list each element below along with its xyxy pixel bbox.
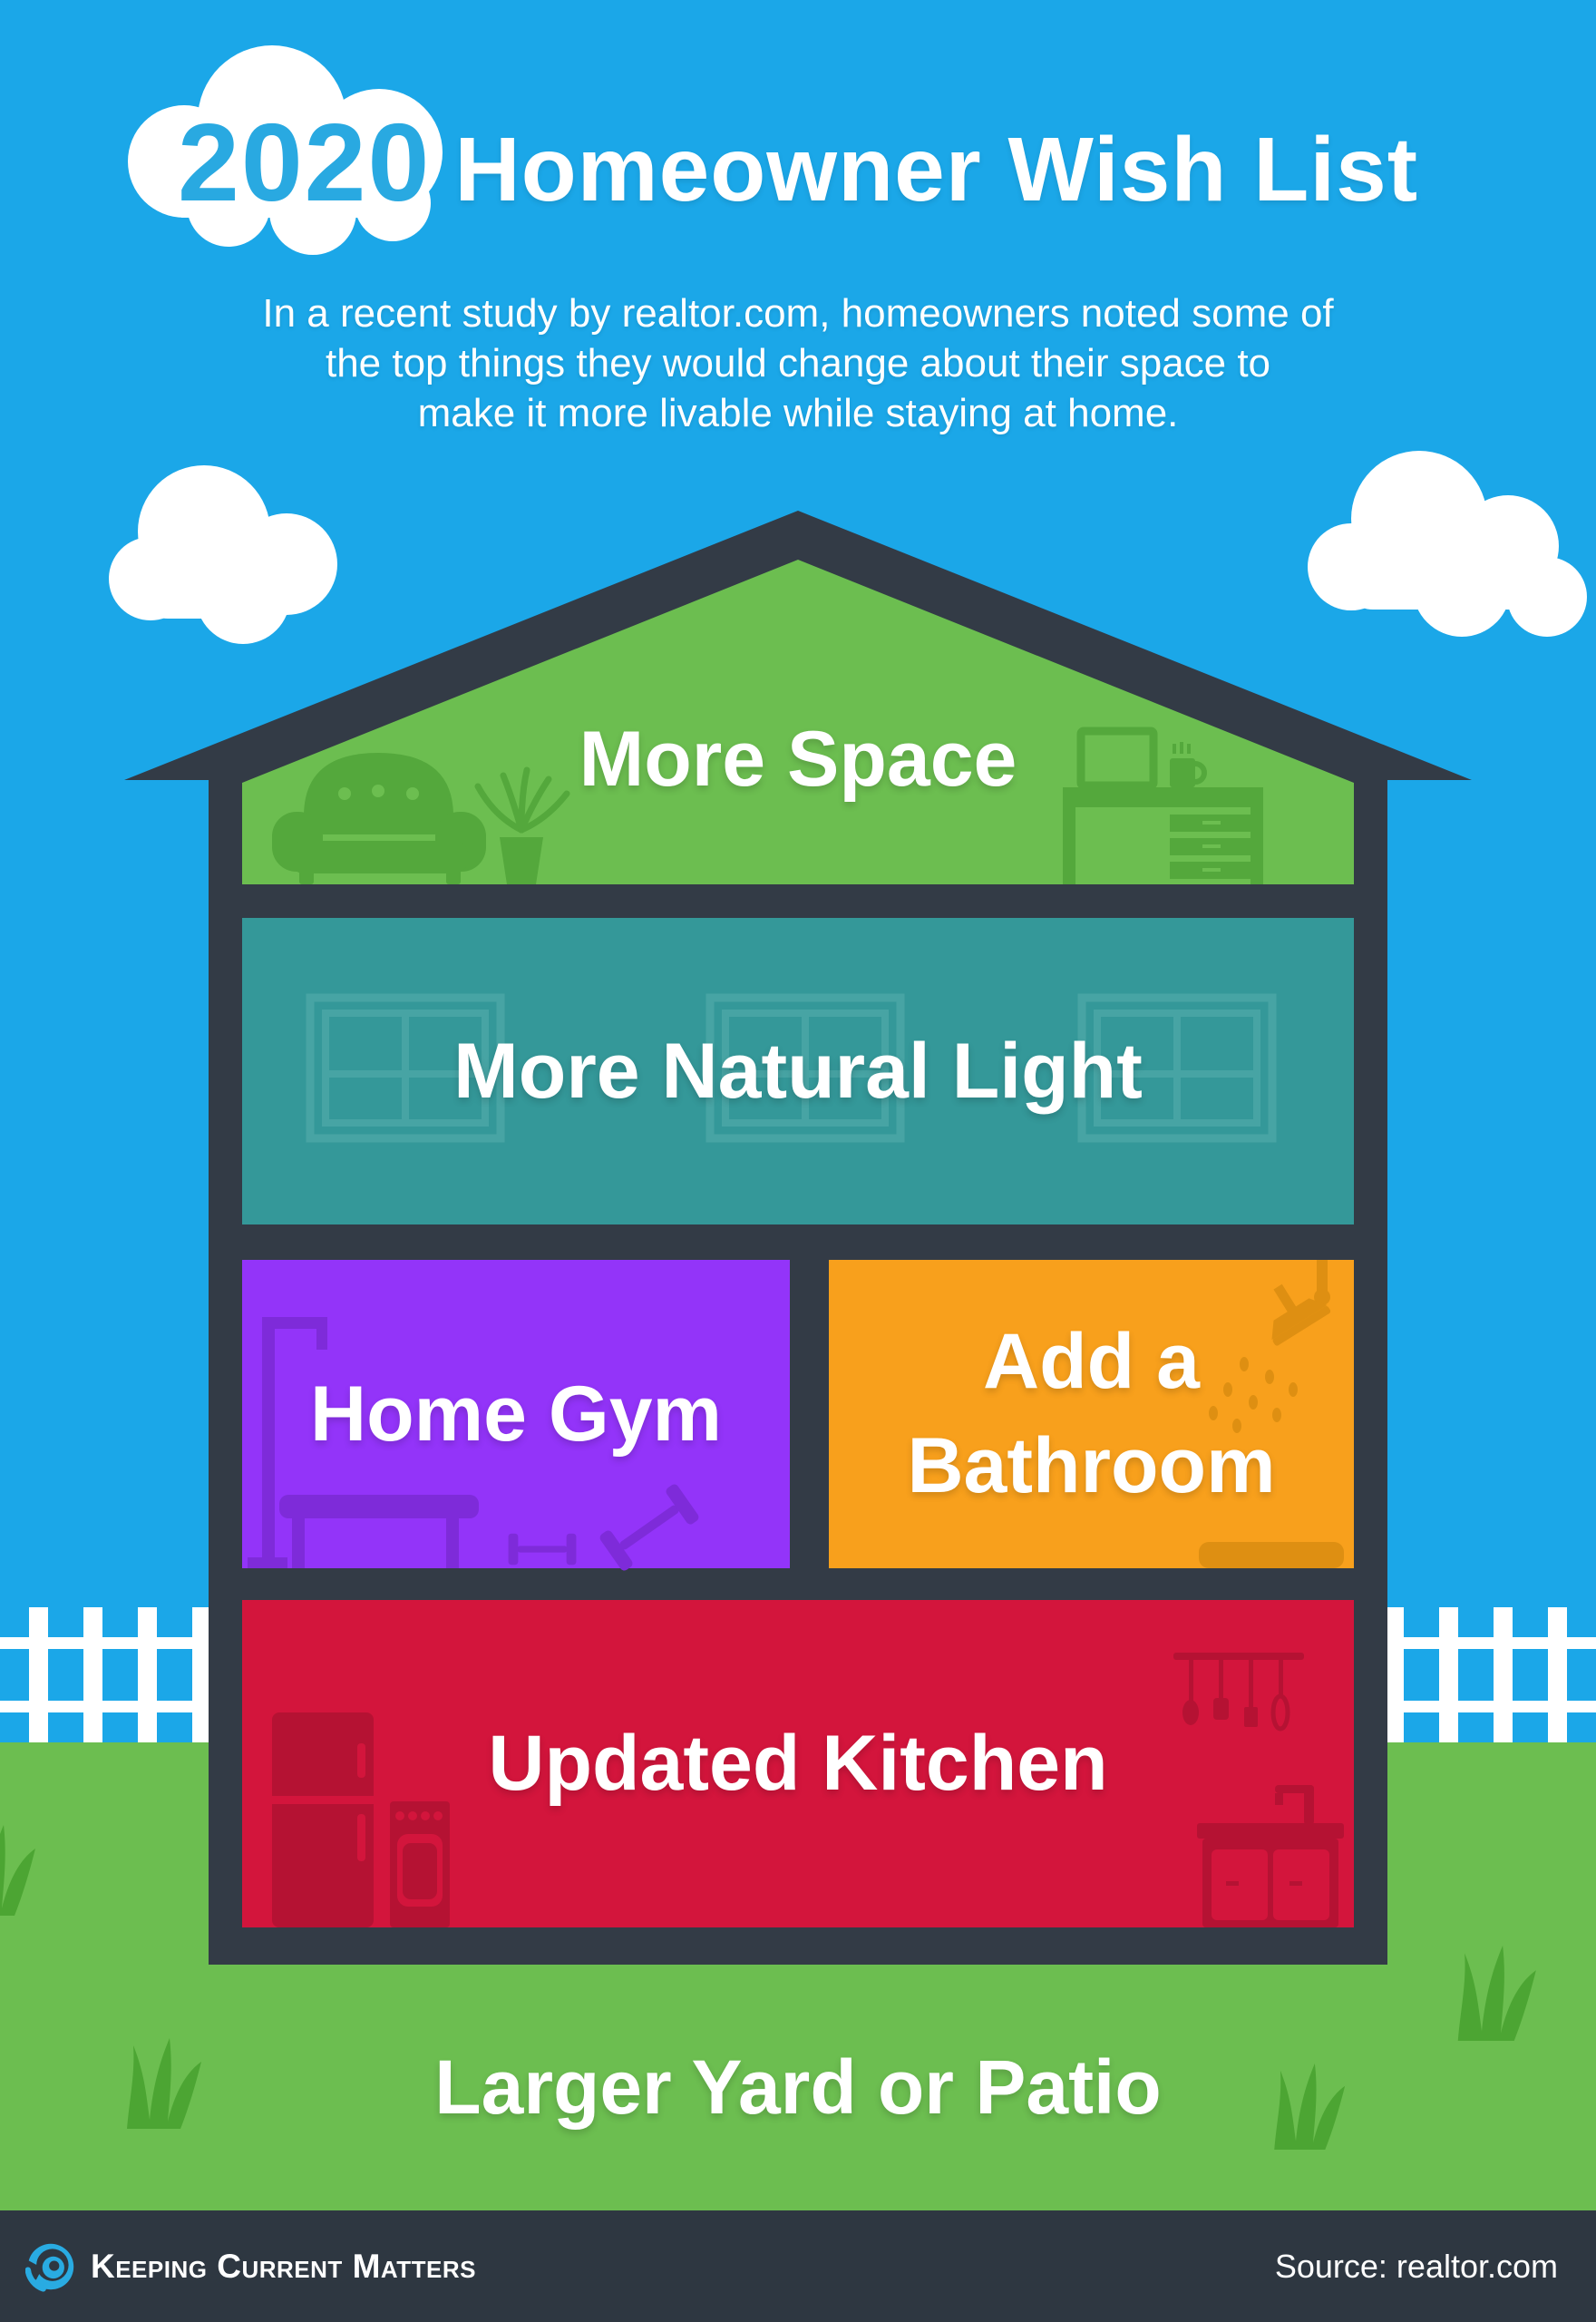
subtitle-line: make it more livable while staying at ho… xyxy=(0,388,1596,438)
infographic-canvas: 2020 Homeowner Wish List In a recent stu… xyxy=(0,0,1596,2322)
subtitle: In a recent study by realtor.com, homeow… xyxy=(0,288,1596,438)
kitchen-label: Updated Kitchen xyxy=(242,1600,1354,1927)
title-main: Homeowner Wish List xyxy=(454,124,1418,215)
bathroom-label-text: Add a Bathroom xyxy=(879,1310,1305,1518)
home-gym-label: Home Gym xyxy=(242,1260,790,1568)
subtitle-line: the top things they would change about t… xyxy=(0,338,1596,388)
kcm-swirl-logo-icon xyxy=(25,2241,76,2292)
yard-label: Larger Yard or Patio xyxy=(0,1965,1596,2210)
footer-bar: Keeping Current Matters Source: realtor.… xyxy=(0,2210,1596,2322)
title-year: 2020 xyxy=(178,107,431,218)
attic-label: More Space xyxy=(242,635,1354,884)
brand-name: Keeping Current Matters xyxy=(91,2248,476,2286)
page-title: 2020 Homeowner Wish List xyxy=(0,107,1596,218)
natural-light-label: More Natural Light xyxy=(242,918,1354,1224)
source-credit: Source: realtor.com xyxy=(1275,2248,1558,2286)
brand: Keeping Current Matters xyxy=(25,2241,1275,2292)
bathroom-label: Add a Bathroom xyxy=(829,1260,1354,1568)
subtitle-line: In a recent study by realtor.com, homeow… xyxy=(0,288,1596,338)
